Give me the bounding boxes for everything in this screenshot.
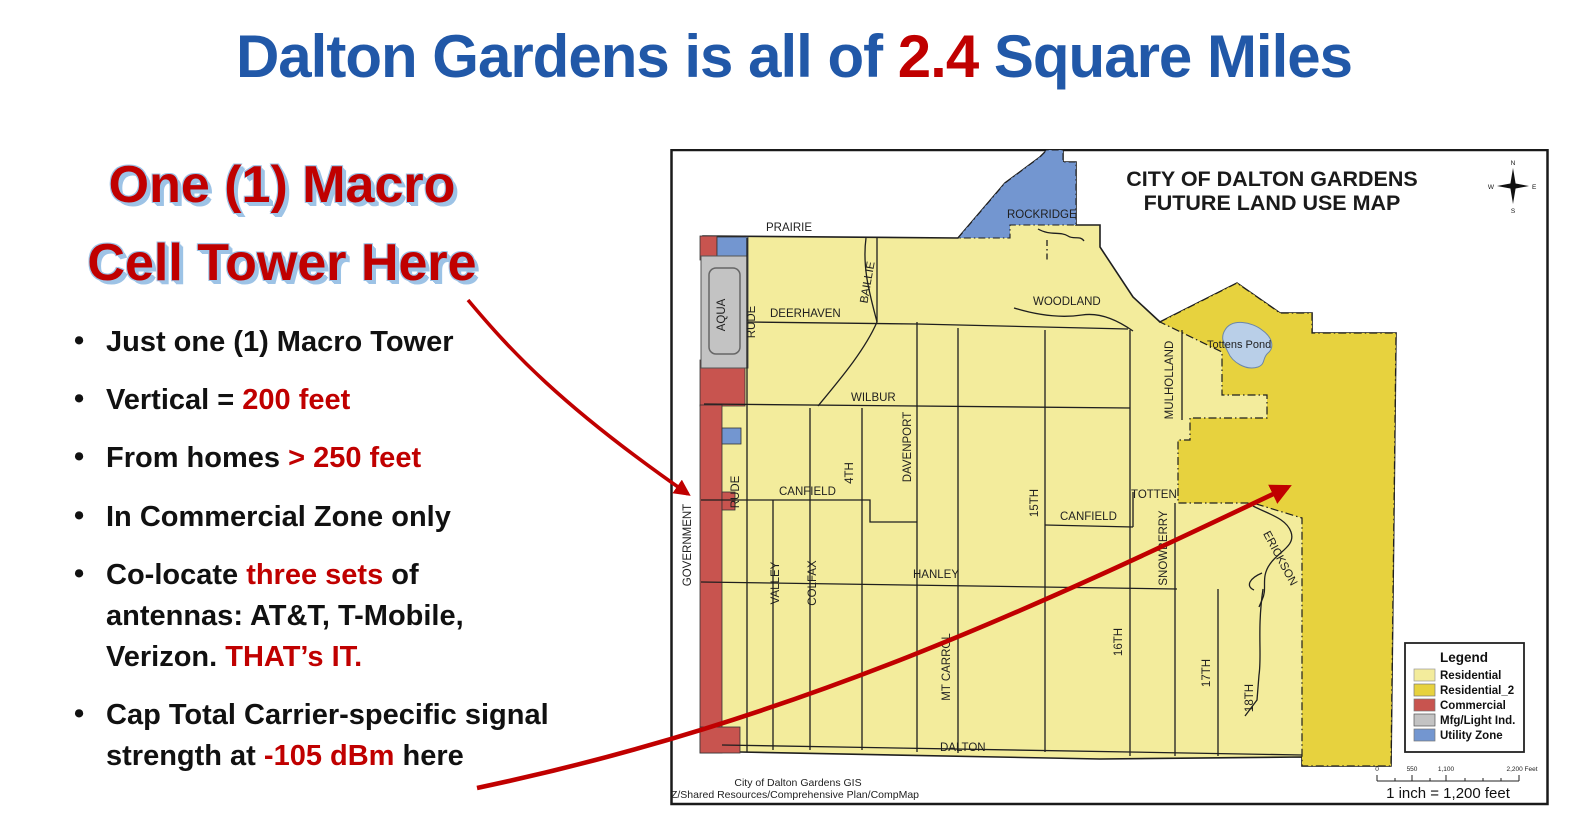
zone-utility-small [717, 237, 748, 256]
street-label-mt-carrol: MT CARROL [941, 633, 953, 701]
scale-label-0: 0 [1375, 766, 1379, 773]
bullet-text: From homes [106, 442, 288, 474]
legend-swatch-residential-2 [1414, 684, 1435, 696]
bullet-item: Vertical = 200 feet [72, 380, 628, 421]
slide-title-highlight: 2.4 [898, 23, 978, 90]
map-credit-line-2: Z/Shared Resources/Comprehensive Plan/Co… [671, 789, 919, 801]
bullet-item: From homes > 250 feet [72, 438, 628, 479]
street-label-canfield-west: CANFIELD [779, 486, 836, 498]
street-label-hanley: HANLEY [913, 569, 959, 581]
street-label-colfax: COLFAX [807, 560, 819, 606]
land-use-map: PRAIRIE ROCKRIDGE WOODLAND DEERHAVEN WIL… [670, 149, 1550, 806]
map-title-line-1: CITY OF DALTON GARDENS [1126, 167, 1417, 191]
map-legend: Legend Residential Residential_2 Commerc… [1405, 643, 1524, 752]
legend-swatch-utility [1414, 729, 1435, 741]
bullet-text-red: THAT’s IT. [225, 641, 362, 673]
street-label-mulholland: MULHOLLAND [1164, 341, 1176, 420]
compass-s: S [1511, 208, 1516, 215]
bullet-item: Just one (1) Macro Tower [72, 322, 628, 363]
bullet-text: here [394, 740, 463, 772]
street-label-government: GOVERNMENT [682, 504, 694, 586]
street-label-davenport: DAVENPORT [902, 412, 914, 483]
bullet-text: In Commercial Zone only [106, 501, 451, 533]
legend-label-mfg: Mfg/Light Ind. [1440, 715, 1515, 727]
street-label-dalton: DALTON [940, 742, 986, 754]
map-title-line-2: FUTURE LAND USE MAP [1144, 191, 1401, 215]
legend-label-residential-2: Residential_2 [1440, 685, 1514, 697]
bullet-text-red: 200 feet [242, 384, 350, 416]
scale-note: 1 inch = 1,200 feet [1386, 785, 1511, 802]
street-label-deerhaven: DEERHAVEN [770, 308, 841, 320]
street-label-canfield-east: CANFIELD [1060, 511, 1117, 523]
street-label-15th: 15TH [1029, 489, 1041, 517]
street-label-4th: 4TH [844, 462, 856, 484]
street-label-wilbur: WILBUR [851, 392, 896, 404]
street-label-woodland: WOODLAND [1033, 296, 1101, 308]
compass-n: N [1511, 160, 1516, 167]
commercial-block [700, 727, 740, 753]
zone-utility-small [722, 428, 741, 444]
pond-label: Tottens Pond [1207, 339, 1271, 351]
street-label-snowberry: SNOWBERRY [1158, 510, 1170, 586]
bullet-text-red: -105 dBm [264, 740, 395, 772]
scale-label-2200: 2,200 Feet [1506, 766, 1537, 773]
bullet-item: Co-locate three sets of antennas: AT&T, … [72, 555, 628, 679]
slide-title: Dalton Gardens is all of 2.4 Square Mile… [0, 22, 1588, 91]
street-label-totten: TOTTEN [1131, 489, 1177, 501]
commercial-block [700, 405, 722, 753]
legend-swatch-residential [1414, 669, 1435, 681]
compass-e: E [1532, 184, 1537, 191]
legend-label-utility: Utility Zone [1440, 730, 1503, 742]
bullet-item: In Commercial Zone only [72, 497, 628, 538]
street-label-rude-south: RUDE [730, 475, 742, 508]
bullet-text-red: three sets [246, 559, 383, 591]
legend-title: Legend [1440, 650, 1488, 665]
callout-line-2: Cell Tower Here [42, 224, 522, 302]
street-label-rockridge: ROCKRIDGE [1007, 209, 1077, 221]
bullet-text: Co-locate [106, 559, 246, 591]
scale-label-1100: 1,100 [1438, 766, 1455, 773]
callout-line-1: One (1) Macro [42, 146, 522, 224]
legend-label-commercial: Commercial [1440, 700, 1506, 712]
slide: { "title": { "prefix": "Dalton Gardens i… [0, 0, 1588, 831]
scale-label-550: 550 [1407, 766, 1418, 773]
legend-swatch-mfg [1414, 714, 1435, 726]
street-label-rude-north: RUDE [746, 305, 758, 338]
map-credit-line-1: City of Dalton Gardens GIS [734, 777, 861, 789]
street-label-prairie: PRAIRIE [766, 222, 812, 234]
legend-label-residential: Residential [1440, 670, 1501, 682]
legend-swatch-commercial [1414, 699, 1435, 711]
compass-w: W [1488, 184, 1495, 191]
bullet-text: Just one (1) Macro Tower [106, 326, 454, 358]
bullet-text-red: > 250 feet [288, 442, 421, 474]
street-label-17th: 17TH [1201, 659, 1213, 687]
slide-title-prefix: Dalton Gardens is all of [236, 23, 898, 90]
compass-hub [1510, 183, 1515, 188]
slide-title-suffix: Square Miles [978, 23, 1352, 90]
street-label-aqua: AQUA [716, 298, 728, 331]
callout-heading: One (1) Macro Cell Tower Here [42, 146, 522, 302]
bullet-text: Vertical = [106, 384, 242, 416]
bullet-item: Cap Total Carrier-specific signal streng… [72, 695, 628, 777]
street-label-16th: 16TH [1113, 628, 1125, 656]
street-label-18th: 18TH [1244, 684, 1256, 712]
bullet-list: Just one (1) Macro Tower Vertical = 200 … [72, 322, 628, 795]
street-label-valley: VALLEY [770, 561, 782, 604]
